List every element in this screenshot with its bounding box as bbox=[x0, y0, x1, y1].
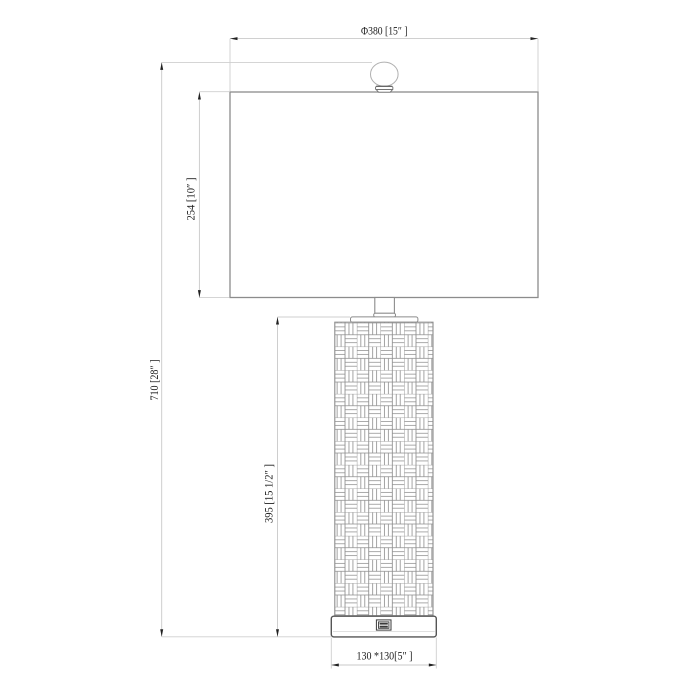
svg-text:254 [10″ ]: 254 [10″ ] bbox=[184, 178, 198, 221]
svg-text:130 *130[5″ ]: 130 *130[5″ ] bbox=[357, 649, 413, 663]
svg-text:710 [28″ ]: 710 [28″ ] bbox=[147, 360, 161, 401]
svg-text:395 [15 1/2″ ]: 395 [15 1/2″ ] bbox=[262, 464, 276, 523]
svg-text:Φ380 [15″ ]: Φ380 [15″ ] bbox=[361, 24, 408, 38]
